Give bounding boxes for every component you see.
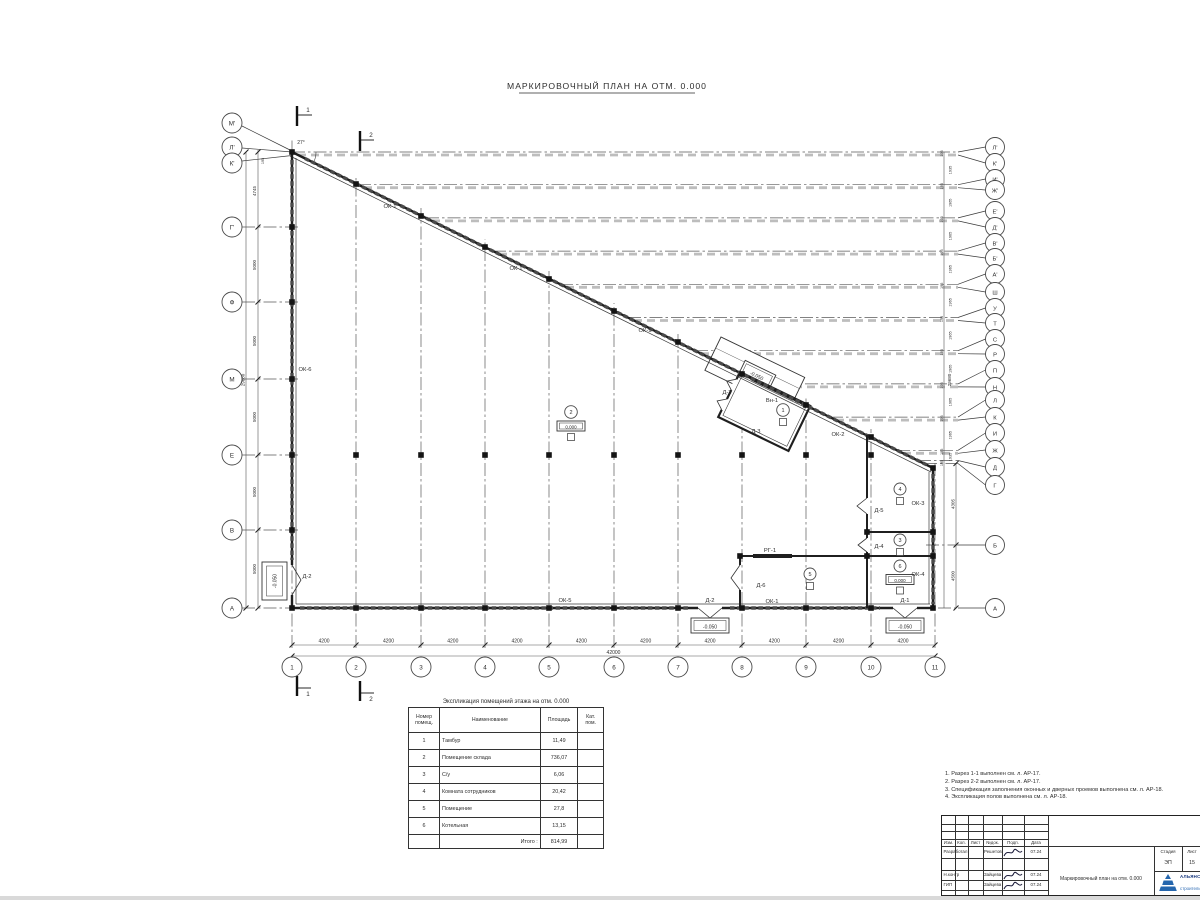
window-ok2: ОК-2 (831, 432, 844, 438)
cell: 20,42 (540, 784, 578, 801)
tb-col-list: Лист (971, 840, 981, 845)
tb-col-data: Дата (1031, 840, 1041, 845)
gate-vn1-label: Вн-1 (766, 398, 778, 404)
cell (578, 835, 604, 849)
tb-role-gip: ГИП (944, 882, 953, 887)
axis-r-16: Л (993, 399, 997, 405)
dim-pair: 1965 (949, 331, 953, 339)
dim-pair: 195 (940, 249, 944, 255)
door-d6-label: Д-6 (756, 583, 765, 589)
grid-vertical-axes (292, 140, 935, 648)
level-mark-door-d2: -0.050 (703, 625, 717, 631)
tb-date-developer: 07.24 (1031, 849, 1042, 854)
room-6-level: 0.000 (894, 578, 906, 583)
level-mark-left: -0.050 (273, 574, 279, 588)
axis-r-10: У (993, 307, 997, 313)
cell: 1 (409, 733, 440, 750)
axis-11: 11 (932, 665, 939, 672)
room-6-number: 6 (898, 564, 901, 570)
room-3-number: 3 (898, 538, 901, 544)
axis-r-13: Р (993, 353, 997, 359)
gate-rg1-label: РГ-1 (764, 548, 776, 554)
tb-name-ncontrol: Зайцева (984, 872, 1001, 877)
total-value: 814,99 (540, 835, 578, 849)
door-d2-left-label: Д-2 (302, 574, 311, 580)
cell: 736,07 (540, 750, 578, 767)
window-ok1-a: ОК-1 (383, 204, 396, 210)
tb-name-gip: Зайцева (984, 882, 1001, 887)
left-dimensions: 195 4745 5000 5000 5000 5000 5000 29680 (241, 150, 266, 611)
axis-r-11: Т (993, 322, 997, 328)
dim-4200: 4200 (383, 639, 394, 645)
dim-4200: 4200 (576, 639, 587, 645)
col-header-cat: Кат. пом. (578, 708, 604, 733)
axis-r-14: П (993, 369, 997, 375)
cell: 2 (409, 750, 440, 767)
door-d2-bottom-label: Д-2 (705, 598, 714, 604)
dim-5000: 5000 (252, 486, 257, 497)
bottom-dimensions: 4200 4200 4200 4200 4200 4200 4200 4200 … (290, 639, 938, 659)
dim-5000: 5000 (252, 563, 257, 574)
axis-g-prime-left: Г' (230, 225, 235, 232)
table-row: 4Комната сотрудников20,42 (409, 784, 604, 801)
axis-r-20: Д (993, 466, 997, 472)
dim-4200: 4200 (511, 639, 522, 645)
axis-f: Ф (230, 300, 235, 307)
cell (578, 801, 604, 818)
axis-r-22: Б (993, 544, 997, 550)
axis-r-23: А (993, 607, 997, 613)
axis-1: 1 (290, 665, 294, 672)
dim-pair: 1965 (949, 298, 953, 306)
axis-e: Е (230, 453, 234, 460)
total-label: Итого : (440, 835, 541, 849)
dim-4745: 4745 (252, 185, 257, 196)
cell: Котельная (440, 818, 541, 835)
dim-pair: 1965 (949, 199, 953, 207)
table-row: 6Котельная13,15 (409, 818, 604, 835)
dim-4200: 4200 (704, 639, 715, 645)
door-d3-b-label: Д-3 (751, 429, 760, 435)
axis-m: М (229, 377, 234, 384)
columns (289, 149, 936, 611)
cell: 27,8 (540, 801, 578, 818)
company-logo-subtext: строительная компания (1180, 886, 1200, 891)
dim-pair: 1935 (949, 166, 953, 174)
tb-col-izm: Изм. (944, 840, 953, 845)
tb-stage-label: Стадия (1161, 849, 1176, 854)
dim-pair: 195 (940, 183, 944, 189)
room-5-number: 5 (808, 572, 811, 578)
dim-4200: 4200 (447, 639, 458, 645)
dim-4200: 4200 (897, 639, 908, 645)
window-ok5: ОК-5 (558, 598, 571, 604)
table-row: 3С/у6,06 (409, 767, 604, 784)
door-d4-label: Д-4 (874, 544, 884, 550)
dim-4200: 4200 (833, 639, 844, 645)
dim-pair: 1965 (949, 265, 953, 273)
tb-sheet-value: 15 (1189, 860, 1195, 866)
cell: 13,15 (540, 818, 578, 835)
table-row: 5Помещение27,8 (409, 801, 604, 818)
level-mark-door-d1: -0.050 (898, 625, 912, 631)
dim-total-42000: 42000 (607, 650, 621, 656)
cell: Помещение (440, 801, 541, 818)
window-ok3: ОК-3 (911, 501, 924, 507)
axis-r-9: Ш (992, 291, 997, 297)
room-4-number: 4 (898, 487, 901, 493)
axis-6: 6 (612, 665, 616, 672)
right-axis-bubbles: Л' К' И' Ж' Е' Д' В' Б' А' Ш У Т С Р П Н… (958, 138, 1005, 618)
axis-7: 7 (676, 665, 680, 672)
signature-icon (1003, 847, 1023, 858)
dim-195-left: 195 (261, 158, 265, 164)
cell: С/у (440, 767, 541, 784)
left-axis-bubbles: М' Л' К' Г' Ф М Е В А (222, 113, 242, 618)
axis-r-1: К' (993, 162, 997, 168)
cell (578, 818, 604, 835)
page-title: МАРКИРОВОЧНЫЙ ПЛАН НА ОТМ. 0.000 (507, 80, 707, 91)
door-d5-label: Д-5 (874, 508, 883, 514)
tb-col-podp: Подп. (1007, 840, 1019, 845)
axis-r-19: Ж (992, 449, 998, 455)
dim-4200: 4200 (318, 639, 329, 645)
axis-m-prime: М' (229, 121, 235, 128)
title-block: Изм. Кол. Лист №док. Подп. Дата Разработ… (941, 815, 1200, 896)
cell (409, 835, 440, 849)
cell: 6 (409, 818, 440, 835)
dim-pair: 195 (940, 382, 944, 388)
room-2-number: 2 (569, 410, 572, 416)
axis-r-7: Б' (993, 257, 998, 263)
dim-pair: 195 (940, 150, 944, 156)
room-2-level: 0.000 (565, 425, 577, 430)
dim-5000: 5000 (252, 259, 257, 270)
dim-5000: 5000 (252, 335, 257, 346)
dim-total-29680-right: 29680 (947, 373, 952, 386)
cell: Помещение склада (440, 750, 541, 767)
angle-label: 27° (297, 140, 305, 146)
section-2-bottom: 2 (369, 696, 373, 703)
window-ok4: ОК-4 (911, 572, 925, 578)
window-ok1-c: ОК-1 (638, 328, 651, 334)
note-line: 2. Разрез 2-2 выполнен см. л. АР-17. (945, 779, 1197, 787)
table-row: 1Тамбур11,49 (409, 733, 604, 750)
axis-r-0: Л' (993, 146, 998, 152)
dim-pair: 1965 (949, 398, 953, 406)
axis-r-5: Д' (992, 226, 997, 232)
dim-pair: 195 (940, 415, 944, 421)
tb-col-kol: Кол. (957, 840, 966, 845)
bottom-axis-bubbles: 1 2 3 4 5 6 7 8 9 10 11 (282, 657, 945, 677)
axis-r-8: А' (993, 273, 998, 279)
cell: 5 (409, 801, 440, 818)
room-1-number: 1 (781, 408, 784, 414)
section-1-bottom: 1 (306, 691, 310, 698)
tb-date-ncontrol: 07.24 (1031, 872, 1042, 877)
interior-walls (292, 435, 933, 618)
dim-pair: 195 (940, 283, 944, 289)
grid-right-axis-lines (292, 152, 958, 608)
notes: 1. Разрез 1-1 выполнен см. л. АР-17. 2. … (945, 771, 1197, 802)
dim-4305: 4305 (951, 498, 956, 509)
cell: Комната сотрудников (440, 784, 541, 801)
cell: 6,06 (540, 767, 578, 784)
dim-pair: 195 (940, 316, 944, 322)
opening-labels: ОК-1 ОК-1 ОК-1 ОК-2 ОК-3 ОК-4 ОК-5 ОК-1 … (298, 204, 925, 605)
tb-name-developer: Решетов (984, 849, 1002, 854)
section-2-top: 2 (369, 132, 373, 139)
level-marks: -0.050 -0.050 -0.050 (262, 562, 924, 633)
note-line: 4. Экспликация полов выполнена см. л. АР… (945, 794, 1197, 802)
drawing-sheet: МАРКИРОВОЧНЫЙ ПЛАН НА ОТМ. 0.000 (0, 0, 1200, 900)
table-row: 2Помещение склада736,07 (409, 750, 604, 767)
dim-4500: 4500 (951, 570, 956, 581)
tb-date-gip: 07.24 (1031, 882, 1042, 887)
table-total-row: Итого :814,99 (409, 835, 604, 849)
grid-left-axis-lines (242, 126, 298, 608)
tb-role-developer: Разработал (944, 849, 968, 854)
cell: 4 (409, 784, 440, 801)
window-ok6: ОК-6 (298, 367, 311, 373)
axis-l-prime-left: Л' (229, 145, 234, 152)
section-marks: 1 2 1 2 27° (297, 106, 374, 703)
room-schedule-table: Номер помещ. Наименование Площадь Кат. п… (408, 707, 604, 849)
axis-r-18: И (993, 432, 997, 438)
axis-10: 10 (867, 665, 875, 672)
axis-v: В (230, 528, 234, 535)
col-header-number: Номер помещ. (409, 708, 440, 733)
tb-sheet-label: Лист (1187, 849, 1197, 854)
dim-pair: 195 (940, 349, 944, 355)
room-schedule: Экспликация помещений этажа на отм. 0.00… (406, 699, 606, 849)
cell: 3 (409, 767, 440, 784)
axis-k-prime-left: К' (230, 161, 235, 168)
axis-4: 4 (483, 665, 487, 672)
note-line: 3. Спецификация заполнения оконных и две… (945, 787, 1197, 795)
door-d3-a-label: Д-3 (722, 390, 731, 396)
dim-pair: 1965 (949, 232, 953, 240)
axis-9: 9 (804, 665, 808, 672)
dim-pair: 195 (940, 449, 944, 455)
dim-pair: 195 (940, 460, 944, 466)
right-dimensions: 195 1935 195 1965 195 1965 195 1965 195 … (940, 150, 959, 610)
door-d1-label: Д-1 (900, 598, 909, 604)
signature-icon (1003, 880, 1023, 891)
tb-stage-value: ЭП (1164, 860, 1171, 866)
cell (578, 784, 604, 801)
company-logo-icon (1158, 874, 1178, 892)
axis-3: 3 (419, 665, 423, 672)
cell (578, 767, 604, 784)
section-1-top: 1 (306, 107, 310, 114)
cell (578, 750, 604, 767)
window-ok1-d: ОК-1 (765, 599, 778, 605)
sheet-edge-strip (0, 896, 1200, 900)
axis-r-6: В' (993, 242, 998, 248)
tb-role-ncontrol: Н.контр (944, 872, 960, 877)
axis-r-12: С (993, 338, 997, 344)
dim-pair: 195 (940, 216, 944, 222)
axis-8: 8 (740, 665, 744, 672)
axis-5: 5 (547, 665, 551, 672)
dim-4200: 4200 (769, 639, 780, 645)
axis-r-4: Е' (993, 210, 998, 216)
axis-2: 2 (354, 665, 358, 672)
note-line: 1. Разрез 1-1 выполнен см. л. АР-17. (945, 771, 1197, 779)
cell: 11,49 (540, 733, 578, 750)
tb-doc-name: Маркировочный план на отм. 0.000 (1060, 876, 1142, 882)
dim-pair: 1965 (949, 365, 953, 373)
dim-5000: 5000 (252, 411, 257, 422)
room-schedule-title: Экспликация помещений этажа на отм. 0.00… (406, 699, 606, 705)
col-header-name: Наименование (440, 708, 541, 733)
company-logo-text: АЛЬЯНС (1180, 874, 1200, 879)
cell (578, 733, 604, 750)
cell: Тамбур (440, 733, 541, 750)
axis-r-3: Ж' (992, 189, 998, 195)
col-header-area: Площадь (540, 708, 578, 733)
dim-pair: 1935 (949, 453, 953, 461)
dim-4200: 4200 (640, 639, 651, 645)
window-ok1-b: ОК-1 (509, 266, 522, 272)
tb-col-ndok: №док. (986, 840, 999, 845)
dim-pair: 1965 (949, 431, 953, 439)
